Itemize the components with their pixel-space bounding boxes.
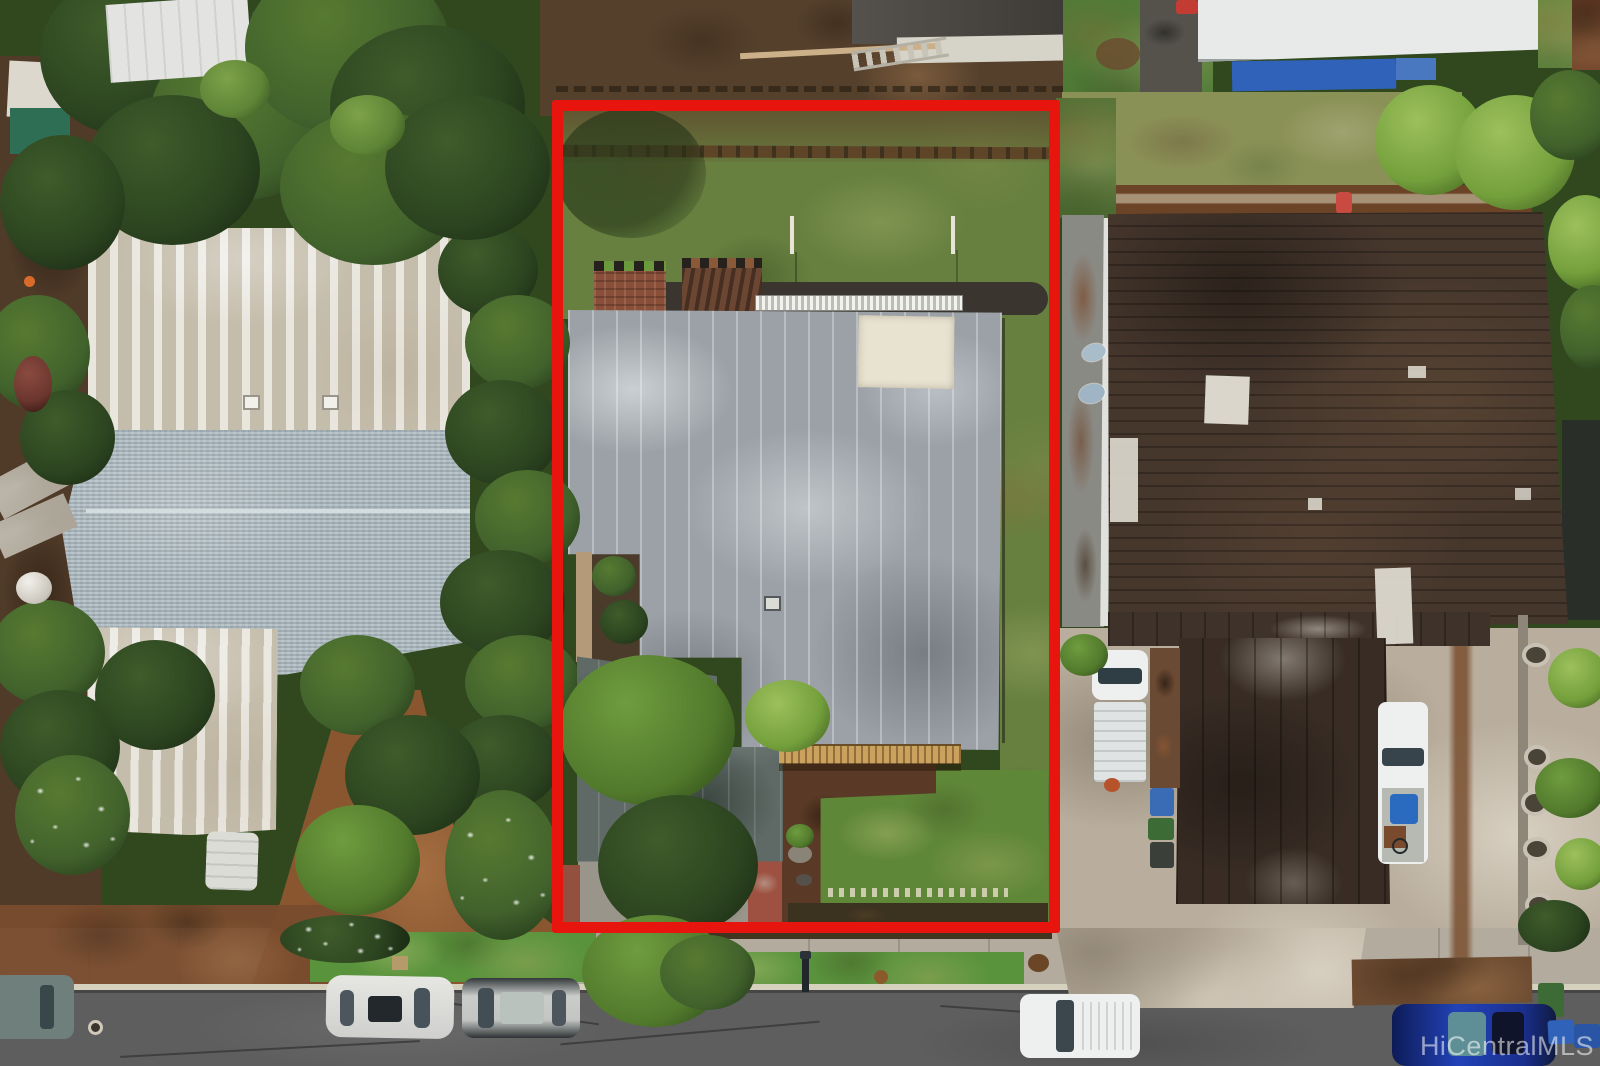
sedan2-rear-window — [552, 990, 566, 1026]
topright-dirt-patch — [1096, 38, 1140, 70]
tree-canopy-blob — [385, 95, 550, 240]
palm-frond-right — [1535, 758, 1600, 818]
tree-canopy-blob — [0, 135, 125, 270]
sedan-windshield — [414, 988, 430, 1028]
tree-canopy-blob — [1530, 70, 1600, 160]
topright-rust-band — [1062, 185, 1532, 217]
pickup-windshield — [1098, 668, 1142, 684]
bicycle — [1392, 838, 1408, 854]
right-house-roof — [1108, 212, 1568, 628]
tree-right-of-roof — [1548, 195, 1600, 290]
watermark: HiCentralMLS — [1420, 1031, 1594, 1062]
hedge-strip-blob — [445, 380, 560, 485]
tree-canopy-blob — [200, 60, 270, 118]
palm-frond-right — [1555, 838, 1600, 890]
trash-bin-blue — [1150, 788, 1174, 816]
pickup-truck-bed — [1094, 702, 1146, 782]
junk-pile — [1150, 648, 1180, 788]
manhole-cover — [1028, 954, 1049, 972]
white-building-roof — [1198, 0, 1540, 62]
roof-repair-patch — [1408, 366, 1426, 378]
palm-frond-right — [1518, 900, 1590, 952]
alley-wall — [1062, 215, 1104, 627]
road-marker-dot — [88, 1020, 103, 1035]
trash-bin-green — [1148, 818, 1174, 840]
flowering-bush-curb — [280, 915, 410, 963]
sign-post — [802, 956, 809, 992]
parked-trailer-small — [205, 831, 259, 891]
left-house-flat-roof — [88, 228, 470, 434]
property-boundary-outline — [552, 100, 1060, 933]
fire-hydrant-marker — [874, 970, 888, 984]
sedan2-windshield — [478, 988, 494, 1028]
red-car-fragment — [1176, 0, 1198, 14]
trash-bin-dark — [1150, 842, 1174, 868]
blue-tarp-strip — [1232, 59, 1396, 92]
sedan2-roof-glass — [500, 992, 544, 1024]
corner-dirt — [1572, 0, 1600, 70]
palm-frond — [660, 935, 755, 1010]
red-object — [1336, 192, 1352, 214]
suv-grille-lines — [1082, 1002, 1132, 1050]
driveway-rust-streak — [1448, 640, 1474, 960]
sedan-sunroof — [368, 996, 402, 1022]
roof-repair-patch — [1515, 488, 1531, 500]
palm-frond-right — [1548, 648, 1600, 708]
utility-box — [392, 956, 408, 970]
alley-grass — [1056, 98, 1116, 218]
parked-car-teal — [0, 975, 74, 1039]
suv-windshield — [1056, 1000, 1074, 1052]
car-windshield — [40, 985, 54, 1029]
roof-repair-patch — [1110, 438, 1138, 522]
tree-canopy-blob — [330, 95, 405, 155]
roof-repair-patch — [1204, 375, 1250, 425]
tree-right-of-roof — [1560, 285, 1600, 370]
garage-roof — [1176, 638, 1390, 904]
van-windshield — [1382, 748, 1424, 766]
flowering-bush — [15, 755, 130, 875]
traffic-cone — [24, 276, 35, 287]
round-planter — [1522, 643, 1550, 667]
aerial-photo: HiCentralMLS — [0, 0, 1600, 1066]
roof-repair-patch — [1308, 498, 1322, 510]
roof-repair-patch — [1375, 567, 1414, 644]
sign-post-cap — [800, 951, 811, 959]
orange-pot — [1104, 778, 1120, 792]
roof-vent — [243, 395, 260, 410]
red-foliage — [14, 356, 52, 412]
sedan-rear-window — [340, 990, 354, 1026]
palm-crown — [295, 805, 420, 915]
blue-tarp-bit — [1396, 58, 1436, 80]
white-dome-object — [16, 572, 52, 604]
roof-vent — [322, 395, 339, 410]
van-blue-tarp — [1390, 794, 1418, 824]
shingle-ridge-line — [86, 509, 470, 513]
round-planter — [1523, 837, 1551, 861]
dark-gap-right — [1562, 420, 1600, 620]
dirt-strip-right — [1352, 956, 1533, 1005]
garden-bush — [95, 640, 215, 750]
back-fence-line — [556, 86, 1064, 92]
